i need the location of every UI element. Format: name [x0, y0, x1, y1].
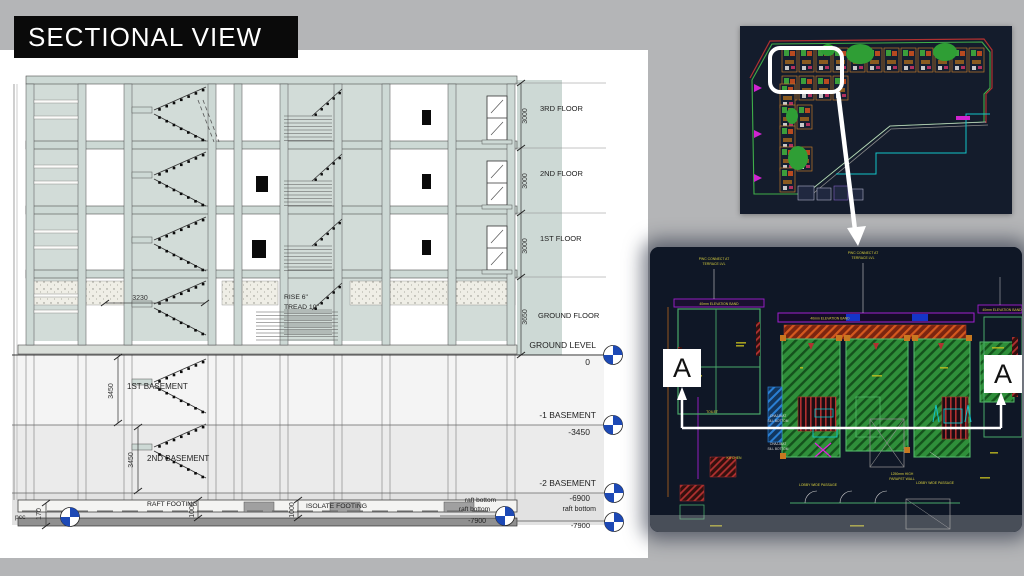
dim-1000-b: 1000	[289, 502, 296, 518]
label-mid-raft-2: raft bottom	[414, 506, 490, 513]
parapet-note-1: 1250mm HIGH	[891, 472, 914, 476]
label-2nd-floor: 2ND FLOOR	[540, 169, 583, 178]
value-ground-level: 0	[530, 357, 590, 367]
band-note-2: 40mm ELEVATION BAND	[810, 317, 850, 321]
label-pcc: pcc	[15, 514, 26, 521]
label-basement-1: -1 BASEMENT	[506, 410, 596, 420]
label-1st-floor: 1ST FLOOR	[540, 234, 582, 243]
leader-note-2b: TERRACE LVL	[852, 256, 875, 260]
passage-note-1: LOBBY WIDE PASSAGE	[799, 483, 838, 487]
value-basement-2: -6900	[530, 494, 590, 503]
label-1st-basement: 1ST BASEMENT	[127, 382, 188, 391]
parapet-note-2: PARAPET WALL	[889, 477, 915, 481]
floor-slabs	[18, 76, 517, 354]
page-title: SECTIONAL VIEW	[14, 16, 298, 58]
label-2nd-basement: 2ND BASEMENT	[147, 454, 209, 463]
site-plan	[740, 26, 1012, 214]
label-3rd-floor: 3RD FLOOR	[540, 104, 583, 113]
kitchen-note: KITCHEN	[727, 456, 742, 460]
value-basement-1: -3450	[530, 427, 590, 437]
leader-note-1b: TERRACE LVL	[703, 262, 726, 266]
dim-3230: 3230	[132, 295, 148, 302]
label-isolate-footing: ISOLATE FOOTING	[306, 503, 367, 510]
chajja-note-2a: CHAJJA AT	[770, 442, 786, 446]
band-note-1: 40mm ELEVATION BAND	[699, 302, 739, 306]
section-marker-a-right: A	[984, 355, 1022, 393]
dim-3450-a: 3450	[108, 383, 115, 399]
dim-3000-b: 3000	[522, 173, 529, 189]
toilet-note: TOILET	[706, 410, 718, 414]
leader-note-1a: PWC CONNECT AT	[699, 257, 729, 261]
leader-note-2a: PWC CONNECT AT	[848, 251, 878, 255]
chajja-note-1a: CHAJJA AT	[770, 414, 786, 418]
dim-170: 170	[36, 508, 43, 520]
value-raft-bottom: -7900	[530, 521, 590, 530]
chajja-note-1b: SILL BOTTOM	[768, 419, 789, 423]
label-ground-level: GROUND LEVEL	[506, 340, 596, 350]
note-tread: TREAD 10"	[284, 304, 319, 311]
chajja-note-2b: SILL BOTTOM	[768, 447, 789, 451]
note-rise: RISE 6"	[284, 294, 308, 301]
label-basement-2: -2 BASEMENT	[506, 478, 596, 488]
label-raft-footing: RAFT FOOTING	[147, 501, 197, 508]
site-plan-panel	[740, 26, 1012, 214]
dim-3000-a: 3000	[522, 108, 529, 124]
columns	[26, 84, 515, 345]
floor-plan-panel: PWC CONNECT AT TERRACE LVL PWC CONNECT A…	[650, 247, 1022, 532]
passage-note-2: LOBBY WIDE PASSAGE	[916, 481, 955, 485]
dim-3000-c: 3000	[522, 238, 529, 254]
dim-3650: 3650	[522, 309, 529, 325]
band-note-3: 40mm ELEVATION BAND	[982, 308, 1022, 312]
plinth-hatch	[28, 281, 515, 305]
section-marker-a-left: A	[663, 349, 701, 387]
bottom-fade	[650, 515, 1022, 532]
dim-3450-b: 3450	[128, 452, 135, 468]
floor-plan: PWC CONNECT AT TERRACE LVL PWC CONNECT A…	[650, 247, 1022, 532]
slide: SECTIONAL VIEW	[0, 0, 1024, 576]
label-ground-floor: GROUND FLOOR	[538, 311, 599, 320]
label-raft-bottom: raft bottom	[506, 506, 596, 513]
label-mid-raft-1: raft bottom	[420, 497, 496, 504]
value-mid-raft: -7900	[430, 518, 486, 525]
